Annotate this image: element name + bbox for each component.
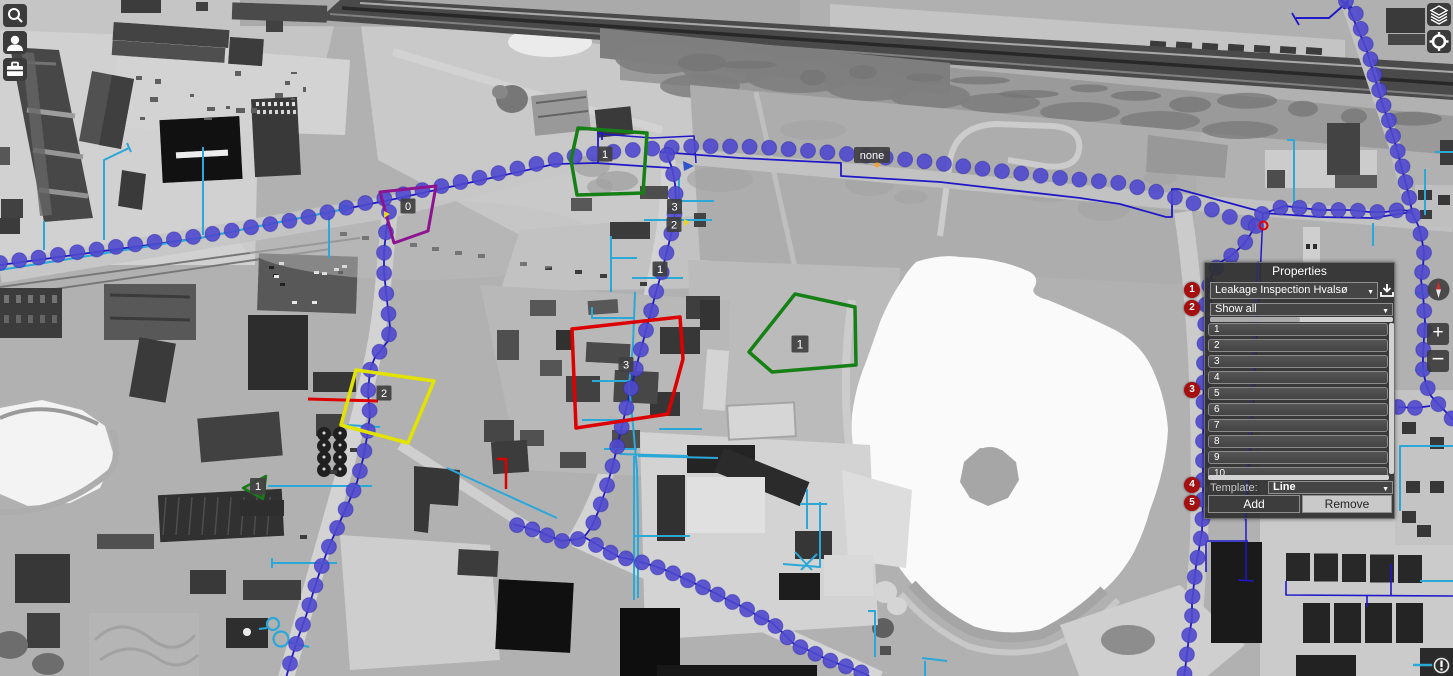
svg-text:3: 3 bbox=[623, 359, 629, 371]
svg-text:none: none bbox=[860, 150, 884, 162]
svg-text:1: 1 bbox=[602, 149, 608, 161]
svg-text:2: 2 bbox=[671, 219, 677, 231]
svg-text:3: 3 bbox=[671, 201, 677, 213]
svg-text:1: 1 bbox=[797, 337, 804, 351]
svg-text:0: 0 bbox=[405, 201, 411, 213]
svg-text:2: 2 bbox=[381, 388, 387, 400]
svg-text:1: 1 bbox=[255, 481, 261, 493]
svg-text:1: 1 bbox=[657, 264, 663, 276]
